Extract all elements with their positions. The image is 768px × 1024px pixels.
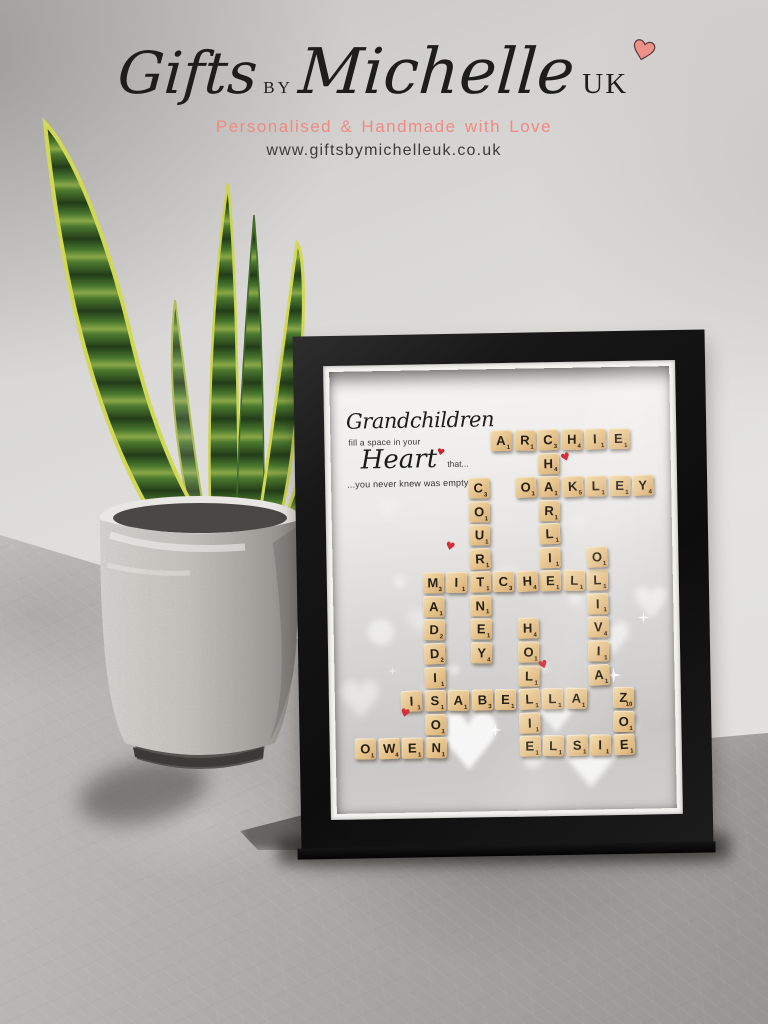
scrabble-tile-A: A1 xyxy=(448,690,469,711)
scrabble-tile-L: L1 xyxy=(543,735,564,756)
scrabble-tile-R: R1 xyxy=(514,429,535,450)
quote-line3-suffix: that... xyxy=(447,459,468,469)
logo-heart-icon xyxy=(627,34,660,70)
scrabble-tile-W: W4 xyxy=(378,738,400,760)
scrabble-tile-H: H4 xyxy=(538,453,559,474)
bokeh-dot xyxy=(449,665,459,675)
frame-mat: ♥♥♥♥♥♥♥♥♥♥ Grandchildren fill a space in… xyxy=(323,360,683,820)
scrabble-tile-H: H4 xyxy=(561,429,582,450)
scrabble-tile-C: C3 xyxy=(537,429,559,451)
scrabble-tile-D: D2 xyxy=(423,619,444,640)
scrabble-tile-A: A1 xyxy=(538,476,559,497)
scrabble-tile-T: T1 xyxy=(469,571,491,593)
scrabble-tile-I: I1 xyxy=(587,593,608,614)
quote-line3: Heart ♥ that... xyxy=(360,445,481,473)
scrabble-tile-O: O1 xyxy=(613,710,634,731)
scrabble-tile-Z: Z10 xyxy=(612,687,633,708)
scrabble-tile-C: C3 xyxy=(468,477,489,498)
concrete-pot xyxy=(100,496,300,769)
scrabble-tile-E: E1 xyxy=(613,734,635,756)
scrabble-tile-K: K5 xyxy=(561,475,583,497)
scrabble-tile-A: A1 xyxy=(565,688,586,709)
scrabble-tile-E: E1 xyxy=(519,736,540,757)
scrabble-tile-O: O1 xyxy=(355,739,376,760)
scrabble-tile-E: E1 xyxy=(470,619,491,640)
scrabble-tile-L: L1 xyxy=(563,570,584,591)
scrabble-tile-N: N1 xyxy=(425,737,446,758)
scrabble-tile-L: L1 xyxy=(518,665,539,686)
bokeh-spark xyxy=(637,611,649,623)
bokeh-dot xyxy=(568,592,582,606)
scrabble-tile-R: R1 xyxy=(468,548,490,570)
red-heart-accent: ♥ xyxy=(537,658,550,672)
scrabble-tile-E: E1 xyxy=(540,570,561,591)
scrabble-tile-M: M3 xyxy=(422,572,443,593)
brand-logo: Gifts BY Michelle UK xyxy=(0,40,768,103)
scrabble-tile-Y: Y4 xyxy=(470,642,491,663)
scrabble-tile-I: I1 xyxy=(539,547,561,569)
scrabble-tile-layer: A1R1C3H4I1E1H4A1R1L1I1E1O1K5L1E1Y4C3O1U1… xyxy=(329,366,669,372)
scrabble-tile-E: E1 xyxy=(608,428,629,449)
artwork: ♥♥♥♥♥♥♥♥♥♥ Grandchildren fill a space in… xyxy=(329,366,677,814)
scrabble-tile-I: I1 xyxy=(588,640,609,661)
scrabble-tile-A: A1 xyxy=(588,663,610,685)
bokeh-heart: ♥ xyxy=(376,498,400,524)
scrabble-tile-I: I1 xyxy=(584,428,606,450)
quote-line1: Grandchildren xyxy=(346,409,481,432)
scrabble-tile-L: L1 xyxy=(542,688,563,709)
scrabble-tile-B: B3 xyxy=(471,689,493,711)
scrabble-tile-A: A1 xyxy=(423,596,444,617)
scrabble-tile-E: E1 xyxy=(495,689,516,710)
scrabble-tile-S: S1 xyxy=(566,735,588,757)
bokeh-dot xyxy=(394,576,406,588)
scrabble-tile-E: E1 xyxy=(609,475,630,496)
scrabble-tile-L: L1 xyxy=(539,523,561,545)
scrabble-tile-D: D2 xyxy=(423,643,445,665)
scrabble-tile-N: N1 xyxy=(470,595,491,616)
red-heart-accent: ♥ xyxy=(444,540,456,553)
bokeh-heart: ♥ xyxy=(631,582,671,627)
scrabble-tile-L: L1 xyxy=(518,688,540,710)
scrabble-tile-I: I1 xyxy=(446,572,467,593)
logo-word-uk: UK xyxy=(582,68,628,101)
scrabble-tile-I: I1 xyxy=(590,734,611,755)
product-photo-scene: Gifts BY Michelle UK Personalised & Hand… xyxy=(0,0,768,1024)
scrabble-tile-L: L1 xyxy=(585,475,606,496)
scrabble-tile-H: H4 xyxy=(517,618,538,639)
scrabble-tile-A: A1 xyxy=(490,430,511,451)
logo-word-gifts: Gifts xyxy=(116,44,259,102)
scrabble-tile-O: O1 xyxy=(586,546,608,568)
scrabble-tile-I: I1 xyxy=(424,666,446,688)
red-heart-accent: ♥ xyxy=(559,451,572,465)
bokeh-spark xyxy=(388,666,397,675)
quote-heart-icon: ♥ xyxy=(436,447,446,458)
scrabble-tile-U: U1 xyxy=(468,524,489,545)
scrabble-tile-O: O1 xyxy=(514,476,536,498)
scrabble-tile-Y: Y4 xyxy=(632,474,654,496)
bokeh-spark xyxy=(489,724,502,737)
scrabble-tile-E: E1 xyxy=(402,738,423,759)
quote-block: Grandchildren fill a space in your Heart… xyxy=(346,409,482,489)
scrabble-tile-R: R1 xyxy=(538,500,559,521)
logo-word-michelle: Michelle xyxy=(297,40,577,103)
scrabble-tile-C: C3 xyxy=(493,571,514,592)
scrabble-art-frame: ♥♥♥♥♥♥♥♥♥♥ Grandchildren fill a space in… xyxy=(293,329,714,850)
bokeh-heart: ♥ xyxy=(567,512,591,538)
scrabble-tile-I: I1 xyxy=(518,712,540,734)
bokeh-heart: ♥ xyxy=(336,675,384,728)
quote-heart-word: Heart xyxy=(360,446,437,473)
quote-line4: ...you never knew was empty xyxy=(347,477,482,489)
red-heart-accent: ♥ xyxy=(399,707,411,720)
scrabble-tile-H: H4 xyxy=(516,570,538,592)
bokeh-dot xyxy=(367,619,393,645)
scrabble-tile-L: L1 xyxy=(587,569,609,591)
scrabble-tile-S: S1 xyxy=(424,690,445,711)
scrabble-tile-O: O1 xyxy=(468,501,489,522)
scrabble-tile-V: V4 xyxy=(588,617,609,638)
bokeh-background: ♥♥♥♥♥♥♥♥♥♥ xyxy=(329,366,669,372)
scrabble-tile-O: O1 xyxy=(425,714,446,735)
